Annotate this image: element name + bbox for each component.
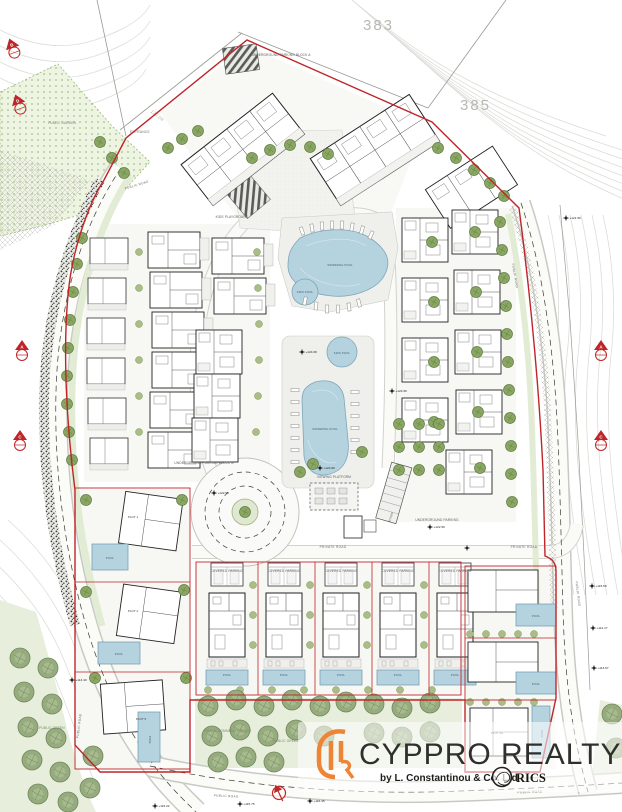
svg-text:VIEWING PLATFORM: VIEWING PLATFORM: [317, 475, 351, 479]
svg-text:PLOT 1: PLOT 1: [128, 515, 139, 519]
logo-block: CYPPRO REALTY by L. Constantinou & Co. L…: [298, 722, 622, 792]
public-community-space-label: PUBLIC COMMUNITY SPACE: [205, 729, 252, 733]
svg-text:+122.50: +122.50: [218, 491, 230, 495]
parcel-number-383: 383: [363, 17, 394, 34]
parcel-number-385: 385: [460, 97, 491, 114]
svg-text:KIDS POOL: KIDS POOL: [297, 290, 314, 294]
svg-text:COVERED PARKING: COVERED PARKING: [210, 569, 243, 573]
svg-text:+124.50: +124.50: [396, 389, 408, 393]
svg-text:PUBLIC ROAD: PUBLIC ROAD: [574, 581, 581, 607]
svg-text:KIDS POOL: KIDS POOL: [334, 351, 351, 355]
svg-text:+122.50: +122.50: [434, 525, 446, 529]
svg-text:POOL: POOL: [223, 673, 232, 677]
svg-text:UNDERGROUND PARKING BLOCK A: UNDERGROUND PARKING BLOCK A: [251, 53, 311, 57]
svg-text:+121.50: +121.50: [570, 216, 582, 220]
svg-text:+124.00: +124.00: [324, 466, 336, 470]
svg-text:UNDERGROUND PARKING: UNDERGROUND PARKING: [415, 518, 459, 522]
svg-text:POOL: POOL: [394, 673, 403, 677]
svg-text:POOL: POOL: [532, 614, 541, 618]
brand-name: CYPPRO REALTY: [359, 738, 622, 771]
parking-ramp-hatch: [222, 44, 259, 74]
svg-text:POOL: POOL: [280, 673, 289, 677]
svg-text:PLOT 5: PLOT 5: [136, 717, 147, 721]
svg-text:UNDERGROUND PARKING BLOCK B: UNDERGROUND PARKING BLOCK B: [174, 461, 233, 465]
svg-text:POOL: POOL: [148, 736, 152, 745]
svg-text:+113.67: +113.67: [598, 666, 609, 670]
svg-text:+115.75: +115.75: [244, 802, 255, 806]
svg-text:+114.17: +114.17: [597, 626, 608, 630]
svg-text:POOL: POOL: [532, 682, 541, 686]
svg-text:POOL: POOL: [115, 652, 124, 656]
public-garden-label: PUBLIC GARDEN: [48, 121, 77, 125]
svg-text:POOL: POOL: [451, 673, 460, 677]
public-green-label: PUBLIC GREEN: [39, 726, 65, 730]
svg-text:POOL: POOL: [337, 673, 346, 677]
svg-text:PLOT 2: PLOT 2: [128, 609, 139, 613]
rics-label: RICS: [516, 771, 546, 785]
site-plan-svg: 383 385 126.04 123.61 116.00: [0, 0, 622, 812]
svg-text:KIDS PLAYGROUND: KIDS PLAYGROUND: [216, 215, 249, 219]
svg-text:SWIMMING POOL: SWIMMING POOL: [312, 427, 338, 431]
svg-text:ENTRANCE: ENTRANCE: [130, 130, 150, 134]
svg-text:+116.45: +116.45: [314, 799, 325, 803]
svg-text:SWIMMING POOL: SWIMMING POOL: [327, 263, 353, 267]
public-green-bottom-label: PUBLIC GREEN: [273, 739, 299, 743]
clubhouse-building: [344, 516, 376, 538]
svg-text:COVERED PARKING: COVERED PARKING: [438, 569, 471, 573]
svg-text:PRIVATE ROAD: PRIVATE ROAD: [320, 545, 347, 549]
svg-text:+113.40: +113.40: [76, 678, 87, 682]
svg-text:COVERED PARKING: COVERED PARKING: [381, 569, 414, 573]
site-plan-drawing: 383 385 126.04 123.61 116.00: [0, 0, 622, 812]
svg-text:+115.22: +115.22: [159, 804, 170, 808]
svg-text:PRIVATE ROAD: PRIVATE ROAD: [511, 545, 538, 549]
svg-text:+124.08: +124.08: [306, 350, 318, 354]
svg-text:+115.50: +115.50: [596, 584, 607, 588]
svg-text:COVERED PARKING: COVERED PARKING: [267, 569, 300, 573]
svg-text:POOL: POOL: [106, 556, 115, 560]
viewing-platform: [310, 483, 358, 510]
svg-text:PUBLIC ROAD: PUBLIC ROAD: [214, 793, 239, 798]
svg-text:COVERED PARKING: COVERED PARKING: [324, 569, 357, 573]
rics-lion-icon: [493, 768, 512, 787]
